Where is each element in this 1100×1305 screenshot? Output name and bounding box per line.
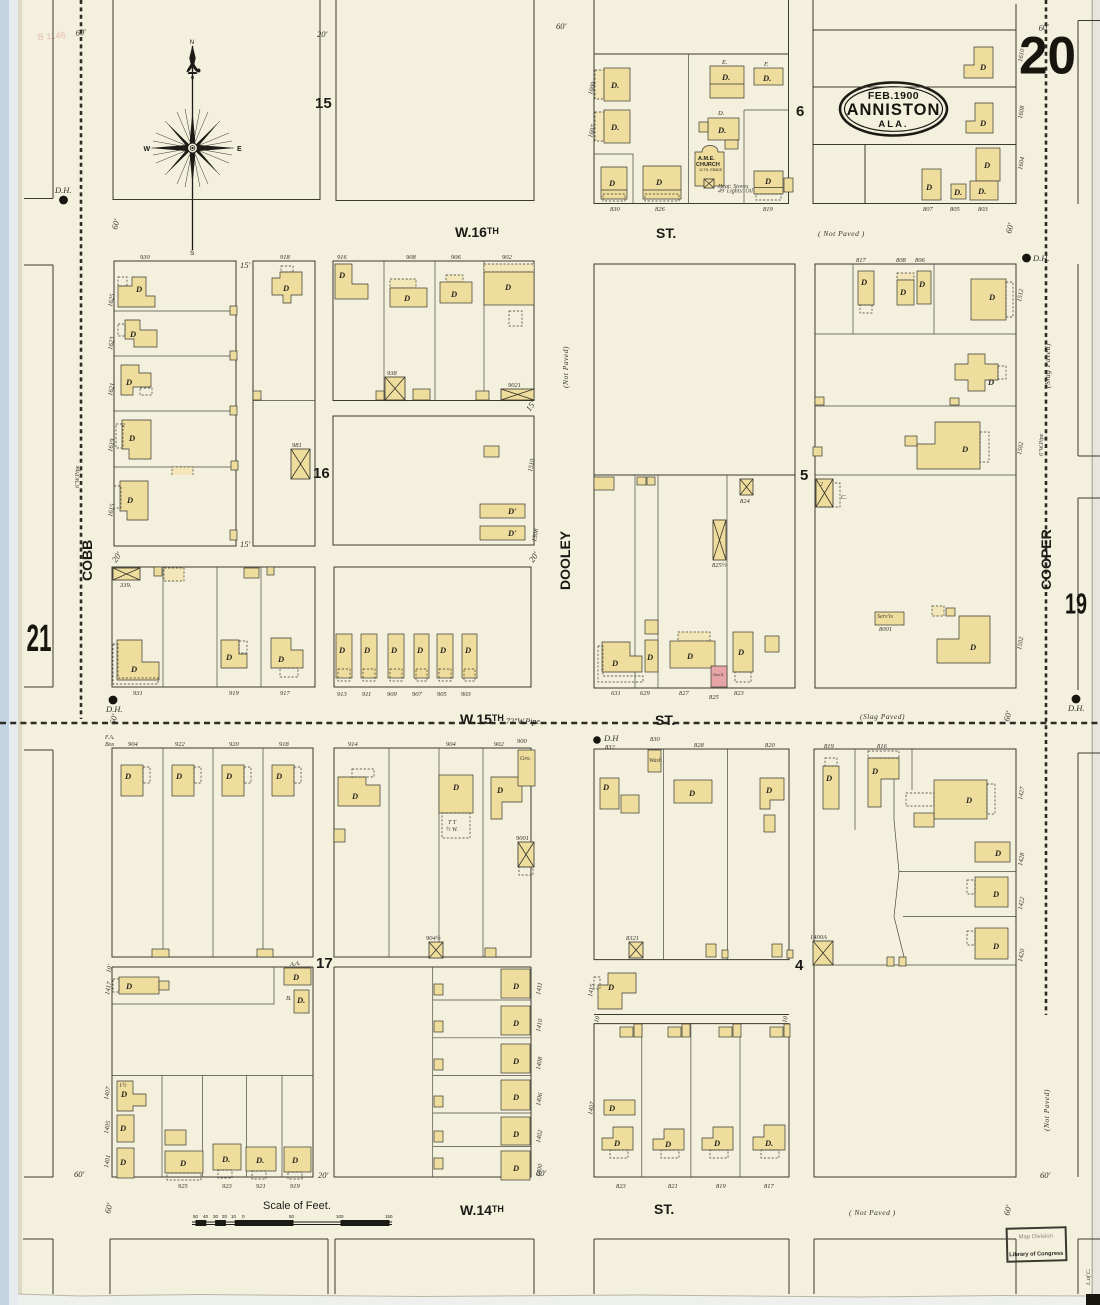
svg-text:D.: D. [977,186,986,196]
svg-text:629: 629 [640,690,651,697]
svg-text:COBB: COBB [79,540,95,581]
svg-text:D: D [688,788,695,798]
svg-text:(Not Paved): (Not Paved) [561,346,570,388]
svg-text:909: 909 [387,691,398,698]
svg-text:D: D [871,766,878,776]
svg-text:930: 930 [140,254,151,261]
svg-text:981: 981 [292,442,302,449]
svg-text:Box: Box [105,742,115,748]
svg-text:819: 819 [824,743,835,750]
svg-text:60': 60' [75,27,87,38]
svg-text:D: D [452,782,459,792]
svg-text:816: 816 [877,743,888,750]
svg-text:15: 15 [315,95,332,112]
svg-text:60': 60' [1038,22,1050,33]
svg-text:D: D [512,981,519,991]
svg-text:D: D [504,282,511,292]
svg-text:C.: C. [841,494,847,501]
svg-text:923: 923 [222,1183,233,1190]
svg-text:D: D [403,293,410,303]
svg-text:D: D [338,270,345,280]
svg-text:830: 830 [650,736,661,743]
svg-text:D.H: D.H [603,733,619,743]
svg-text:17: 17 [316,955,333,972]
svg-text:827: 827 [679,690,690,697]
svg-text:D.: D. [221,1154,230,1164]
svg-text:F.: F. [763,61,769,68]
svg-text:B.: B. [286,995,292,1002]
svg-text:DOOLEY: DOOLEY [557,530,573,590]
svg-text:S: S [190,250,195,257]
svg-text:( Not Paved ): ( Not Paved ) [818,229,865,238]
svg-text:100: 100 [336,1214,344,1219]
svg-text:20': 20' [318,1170,329,1180]
svg-text:D: D [338,645,345,655]
svg-text:D: D [179,1158,186,1168]
svg-text:N: N [190,39,195,46]
svg-text:D.: D. [762,73,771,83]
svg-text:918: 918 [279,741,290,748]
svg-text:1½: 1½ [119,1082,127,1089]
svg-text:D: D [979,118,986,128]
svg-text:D: D [979,62,986,72]
svg-text:D.: D. [721,72,730,82]
svg-text:904: 904 [128,741,139,748]
svg-text:15': 15' [240,539,251,549]
svg-text:21: 21 [27,618,52,660]
svg-text:D: D [988,292,995,302]
svg-text:30: 30 [213,1214,219,1219]
svg-text:D: D [860,277,867,287]
svg-text:5: 5 [800,467,808,484]
svg-text:820: 820 [765,742,776,749]
svg-text:918: 918 [280,254,291,261]
svg-text:D: D [126,495,133,505]
svg-text:D.H.: D.H. [1067,703,1085,713]
svg-text:D: D [602,782,609,792]
svg-text:D: D [464,645,471,655]
svg-text:D: D [607,982,614,992]
svg-text:20: 20 [1019,27,1076,86]
svg-text:D.: D. [764,1138,773,1148]
svg-text:823: 823 [616,1183,627,1190]
svg-text:D: D [129,329,136,339]
svg-text:Scale of Feet.: Scale of Feet. [263,1200,331,1212]
svg-text:A.: A. [289,961,296,968]
svg-text:D.H.: D.H. [1032,253,1050,263]
svg-text:10: 10 [231,1214,237,1219]
svg-text:D: D [965,795,972,805]
svg-text:D: D [613,1138,620,1148]
svg-text:Map Division: Map Division [1019,1234,1054,1241]
svg-text:D: D [225,652,232,662]
svg-text:D: D [120,1089,127,1099]
svg-text:817: 817 [764,1183,775,1190]
svg-text:919: 919 [229,690,240,697]
svg-text:W: W [144,146,151,153]
svg-text:D: D [608,178,615,188]
svg-text:D': D' [507,528,517,538]
svg-text:E: E [237,146,242,153]
svg-text:916: 916 [337,254,348,261]
svg-text:D.: D. [296,995,305,1005]
svg-text:D: D [512,1163,519,1173]
svg-text:8001: 8001 [879,626,892,633]
svg-text:12 TH. GRADE: 12 TH. GRADE [699,168,723,172]
svg-text:903: 903 [461,691,472,698]
svg-text:D.H.: D.H. [105,704,123,714]
svg-text:8321: 8321 [626,935,639,942]
svg-text:D: D [124,771,131,781]
svg-text:902: 902 [494,741,505,748]
svg-text:6"W.Pipe: 6"W.Pipe [1039,433,1045,456]
svg-text:D: D [119,1157,126,1167]
svg-text:D: D [512,1129,519,1139]
svg-text:D: D [291,1155,298,1165]
svg-text:1400A: 1400A [810,934,827,941]
svg-text:D: D [130,664,137,674]
svg-text:B 1146: B 1146 [37,30,65,42]
svg-text:D: D [512,1056,519,1066]
svg-text:D: D [416,645,423,655]
svg-text:Gro.S: Gro.S [713,672,724,677]
svg-text:50: 50 [289,1214,295,1219]
svg-text:Gro.: Gro. [520,756,531,762]
svg-text:D.: D. [953,187,962,197]
svg-text:D: D [992,941,999,951]
svg-text:F.A.: F.A. [104,735,115,741]
svg-text:913: 913 [337,691,348,698]
svg-text:803: 803 [978,206,989,213]
svg-text:(Slag Paved): (Slag Paved) [860,712,905,721]
svg-text:D: D [764,176,771,186]
svg-text:( Not Paved ): ( Not Paved ) [849,1208,896,1217]
svg-text:ALA.: ALA. [878,119,908,130]
svg-text:925: 925 [178,1183,189,1190]
svg-text:D: D [918,279,925,289]
svg-text:19: 19 [1065,589,1087,621]
svg-text:2: 2 [820,482,823,488]
svg-text:D: D [825,773,832,783]
svg-text:D: D [225,771,232,781]
svg-text:D.: D. [717,125,726,135]
svg-text:150: 150 [385,1214,393,1219]
svg-text:D: D [363,645,370,655]
svg-text:D: D [655,177,662,187]
svg-text:60': 60' [1040,1170,1051,1180]
svg-text:40: 40 [203,1214,209,1219]
svg-text:9021: 9021 [508,382,521,389]
svg-text:½ W.: ½ W. [446,826,458,833]
svg-text:4: 4 [795,957,804,974]
svg-text:D: D [987,377,994,387]
svg-text:15': 15' [240,260,251,270]
svg-text:905: 905 [437,691,448,698]
svg-text:(Slag Paved): (Slag Paved) [1043,343,1052,388]
svg-text:D: D [969,642,976,652]
svg-text:D: D [175,771,182,781]
svg-text:D.: D. [717,110,725,117]
svg-text:D: D [925,182,932,192]
svg-text:D: D [119,1123,126,1133]
svg-text:922: 922 [175,741,186,748]
svg-text:808: 808 [896,257,907,264]
svg-text:825: 825 [709,694,720,701]
svg-text:339.: 339. [119,582,132,589]
svg-text:917: 917 [280,690,291,697]
svg-text:D.: D. [255,1155,264,1165]
svg-text:D: D [512,1092,519,1102]
svg-text:Serv'ts: Serv'ts [877,614,894,620]
svg-text:826: 826 [655,206,666,213]
svg-text:ANNISTON: ANNISTON [847,101,941,119]
svg-text:D: D [961,444,968,454]
svg-text:D: D [713,1138,720,1148]
svg-text:819: 819 [716,1183,727,1190]
svg-text:823: 823 [734,690,745,697]
svg-text:D: D [135,284,142,294]
svg-text:D: D [275,771,282,781]
svg-text:D: D [983,160,990,170]
svg-text:16: 16 [313,465,330,482]
svg-text:906: 906 [451,254,462,261]
svg-text:Wash: Wash [649,758,662,764]
svg-text:938: 938 [387,370,398,377]
svg-text:D': D' [507,506,517,516]
svg-text:D.: D. [610,80,619,90]
svg-text:D: D [125,981,132,991]
svg-text:631: 631 [611,690,621,697]
svg-text:D: D [992,889,999,899]
svg-text:2: 2 [122,423,125,429]
svg-text:L.of C.: L.of C. [1085,1268,1092,1286]
svg-text:908: 908 [406,254,417,261]
svg-text:D: D [292,972,299,982]
svg-text:D: D [664,1139,671,1149]
svg-text:805: 805 [950,206,961,213]
svg-text:20: 20 [222,1214,228,1219]
svg-text:D: D [646,652,653,662]
svg-text:821: 821 [668,1183,678,1190]
svg-text:824: 824 [740,498,751,505]
svg-text:920: 920 [229,741,240,748]
svg-text:902: 902 [502,254,513,261]
svg-text:828: 828 [694,742,705,749]
svg-text:919: 919 [290,1183,301,1190]
svg-text:COOPER: COOPER [1038,529,1054,590]
svg-text:D: D [686,651,693,661]
svg-text:904½: 904½ [426,935,441,942]
svg-text:D: D [994,848,1001,858]
svg-text:ST.: ST. [654,1201,674,1217]
svg-text:807: 807 [923,206,934,213]
svg-text:ST.: ST. [656,225,676,241]
svg-text:D: D [277,654,284,664]
svg-text:50: 50 [193,1214,199,1219]
svg-text:D: D [496,785,503,795]
svg-text:D: D [899,287,906,297]
svg-text:D: D [390,645,397,655]
svg-text:806: 806 [915,257,926,264]
svg-text:6: 6 [796,103,804,120]
svg-text:D: D [611,658,618,668]
svg-text:832: 832 [605,744,616,751]
svg-text:60': 60' [556,21,567,31]
svg-text:T T: T T [448,820,457,826]
svg-text:6"W.Pipe: 6"W.Pipe [75,465,81,488]
svg-text:931: 931 [133,690,143,697]
svg-text:830: 830 [610,206,621,213]
svg-text:911: 911 [362,691,371,698]
svg-text:904: 904 [446,741,457,748]
svg-text:20': 20' [317,29,328,39]
svg-text:9001: 9001 [516,835,529,842]
svg-text:D: D [450,289,457,299]
svg-text:921: 921 [256,1183,266,1190]
svg-text:D: D [608,1103,615,1113]
svg-text:914: 914 [348,741,359,748]
svg-text:E.: E. [721,59,728,66]
svg-text:D: D [512,1018,519,1028]
svg-text:D: D [765,785,772,795]
svg-text:900: 900 [517,738,528,745]
svg-text:819: 819 [763,206,774,213]
svg-text:(Not Paved): (Not Paved) [1042,1089,1051,1131]
svg-text:817: 817 [856,257,867,264]
svg-text:D: D [737,647,744,657]
svg-text:D: D [282,283,289,293]
svg-text:ST.: ST. [655,712,675,728]
svg-text:D.H.: D.H. [54,185,72,195]
svg-text:D.: D. [610,122,619,132]
svg-text:D: D [439,645,446,655]
svg-text:D: D [125,377,132,387]
svg-text:D: D [351,791,358,801]
svg-text:825½: 825½ [712,562,727,569]
svg-text:D: D [128,433,135,443]
svg-text:907: 907 [412,691,423,698]
svg-text:60': 60' [74,1169,85,1179]
